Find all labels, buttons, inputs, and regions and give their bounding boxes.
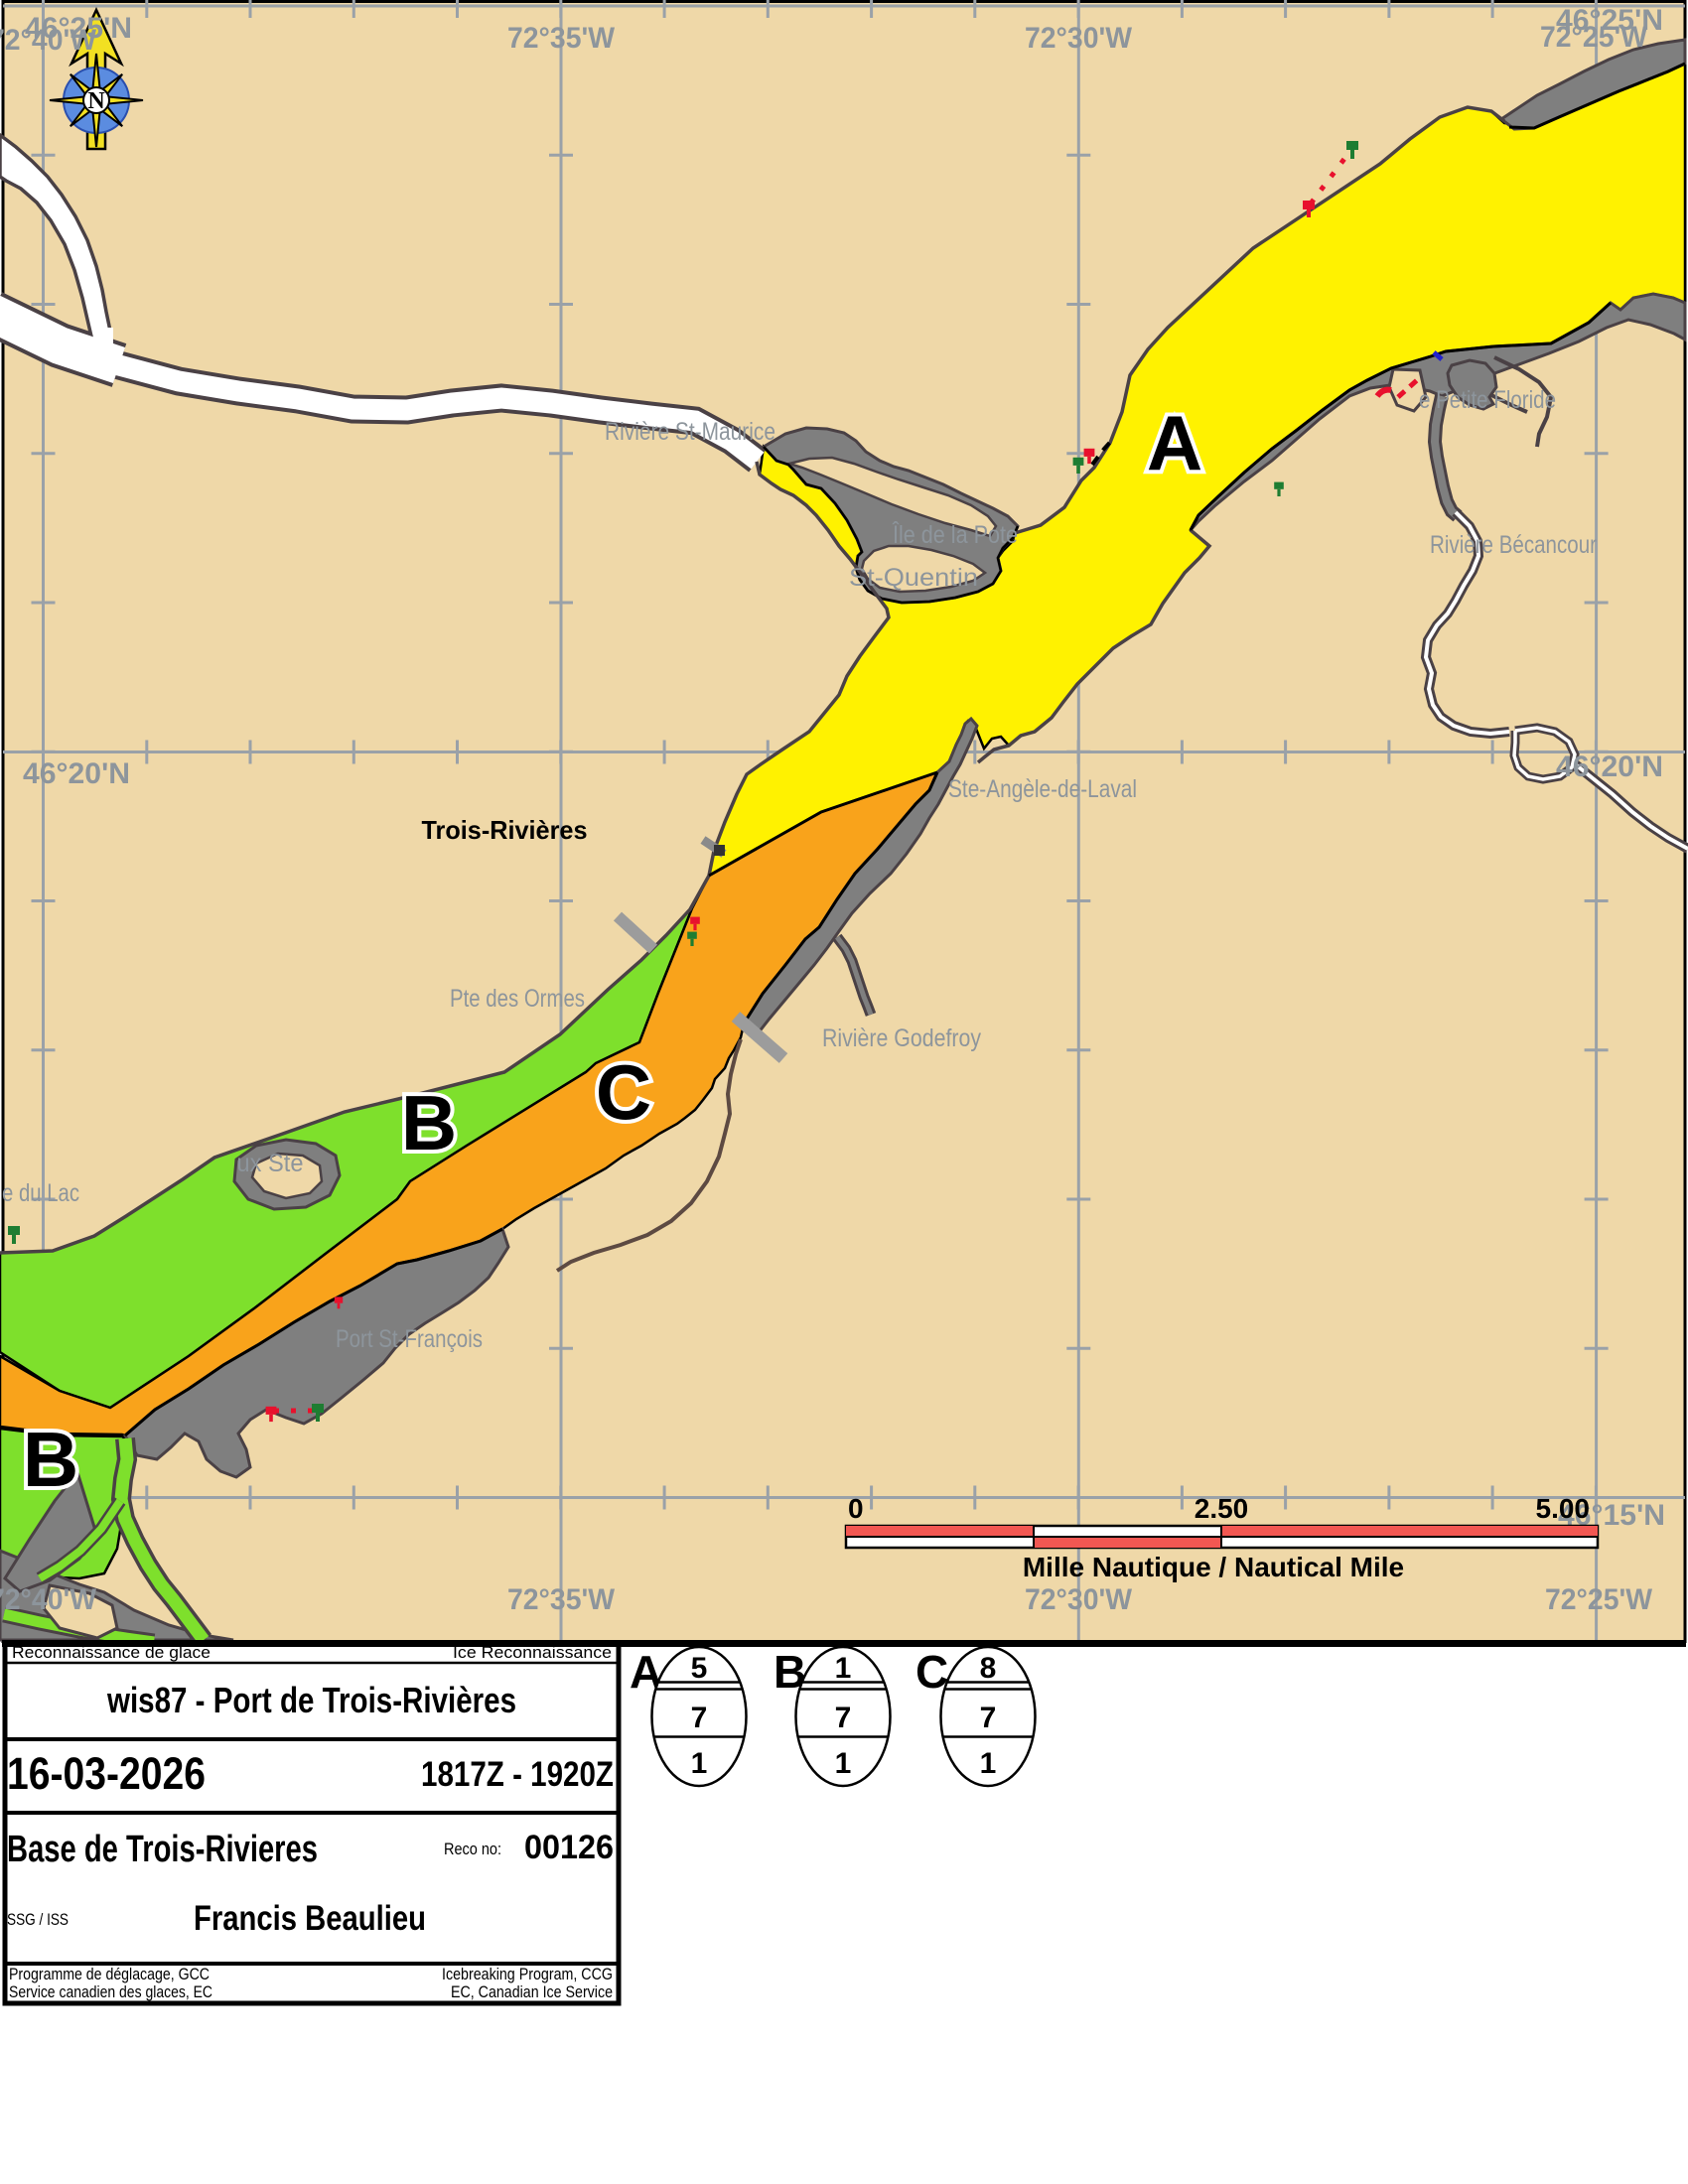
svg-text:72°35'W: 72°35'W	[507, 1583, 616, 1616]
svg-text:72°30'W: 72°30'W	[1025, 1583, 1133, 1616]
svg-text:1: 1	[835, 1652, 852, 1685]
svg-text:72°40'W: 72°40'W	[0, 1583, 97, 1616]
svg-text:Trois-Rivières: Trois-Rivières	[422, 815, 588, 845]
svg-text:Rivière St-Maurice: Rivière St-Maurice	[605, 418, 775, 446]
svg-text:00126: 00126	[524, 1829, 614, 1866]
svg-text:72°35'W: 72°35'W	[507, 22, 616, 55]
svg-text:5: 5	[691, 1652, 708, 1685]
svg-text:1: 1	[691, 1747, 708, 1780]
svg-text:Mille Nautique / Nautical Mile: Mille Nautique / Nautical Mile	[1023, 1552, 1404, 1582]
svg-text:46°20'N: 46°20'N	[1556, 751, 1663, 783]
svg-text:7: 7	[835, 1702, 852, 1734]
svg-text:Icebreaking Program, CCG: Icebreaking Program, CCG	[442, 1965, 613, 1983]
svg-text:EC, Canadian Ice Service: EC, Canadian Ice Service	[451, 1982, 613, 2001]
svg-text:Île de la Pote: Île de la Pote	[892, 520, 1018, 549]
svg-text:C: C	[596, 1048, 651, 1136]
svg-text:46°25'N: 46°25'N	[1556, 4, 1663, 37]
svg-text:Pte des Ormes: Pte des Ormes	[450, 985, 585, 1013]
svg-text:Base de Trois-Rivieres: Base de Trois-Rivieres	[7, 1829, 318, 1870]
svg-text:A: A	[1147, 399, 1202, 486]
svg-text:0: 0	[848, 1493, 864, 1524]
svg-text:7: 7	[691, 1702, 708, 1734]
svg-text:8: 8	[980, 1652, 997, 1685]
svg-text:72°40'W: 72°40'W	[0, 24, 97, 57]
svg-text:46°20'N: 46°20'N	[23, 757, 130, 790]
svg-text:16-03-2026: 16-03-2026	[7, 1748, 206, 1799]
svg-text:Port St-François: Port St-François	[336, 1325, 483, 1353]
svg-text:Programme de déglacage, GCC: Programme de déglacage, GCC	[9, 1965, 210, 1983]
svg-text:St-Quentin: St-Quentin	[849, 564, 978, 592]
svg-text:2.50: 2.50	[1195, 1493, 1249, 1524]
svg-text:Reco no:: Reco no:	[444, 1840, 501, 1858]
svg-text:5.00: 5.00	[1536, 1493, 1591, 1524]
svg-text:1: 1	[980, 1747, 997, 1780]
svg-text:e du Lac: e du Lac	[2, 1179, 79, 1207]
svg-text:1817Z - 1920Z: 1817Z - 1920Z	[421, 1755, 614, 1794]
svg-text:e Petite Floride: e Petite Floride	[1419, 386, 1556, 414]
svg-text:Service canadien des glaces, E: Service canadien des glaces, EC	[9, 1982, 212, 2001]
svg-text:72°25'W: 72°25'W	[1545, 1583, 1653, 1616]
svg-text:N: N	[87, 88, 105, 114]
svg-text:B: B	[401, 1079, 457, 1166]
svg-text:wis87 - Port de Trois-Rivières: wis87 - Port de Trois-Rivières	[106, 1680, 516, 1720]
svg-text:Rivière Bécancour: Rivière Bécancour	[1430, 531, 1597, 559]
svg-text:SSG / ISS: SSG / ISS	[7, 1910, 69, 1929]
svg-text:ux Ste: ux Ste	[237, 1150, 304, 1177]
svg-text:B: B	[23, 1416, 78, 1503]
svg-text:Ste-Angèle-de-Laval: Ste-Angèle-de-Laval	[948, 775, 1137, 803]
svg-text:7: 7	[980, 1702, 997, 1734]
svg-text:1: 1	[835, 1747, 852, 1780]
svg-text:Francis Beaulieu: Francis Beaulieu	[194, 1899, 426, 1938]
svg-text:Rivière Godefroy: Rivière Godefroy	[822, 1024, 981, 1052]
svg-text:72°30'W: 72°30'W	[1025, 22, 1133, 55]
